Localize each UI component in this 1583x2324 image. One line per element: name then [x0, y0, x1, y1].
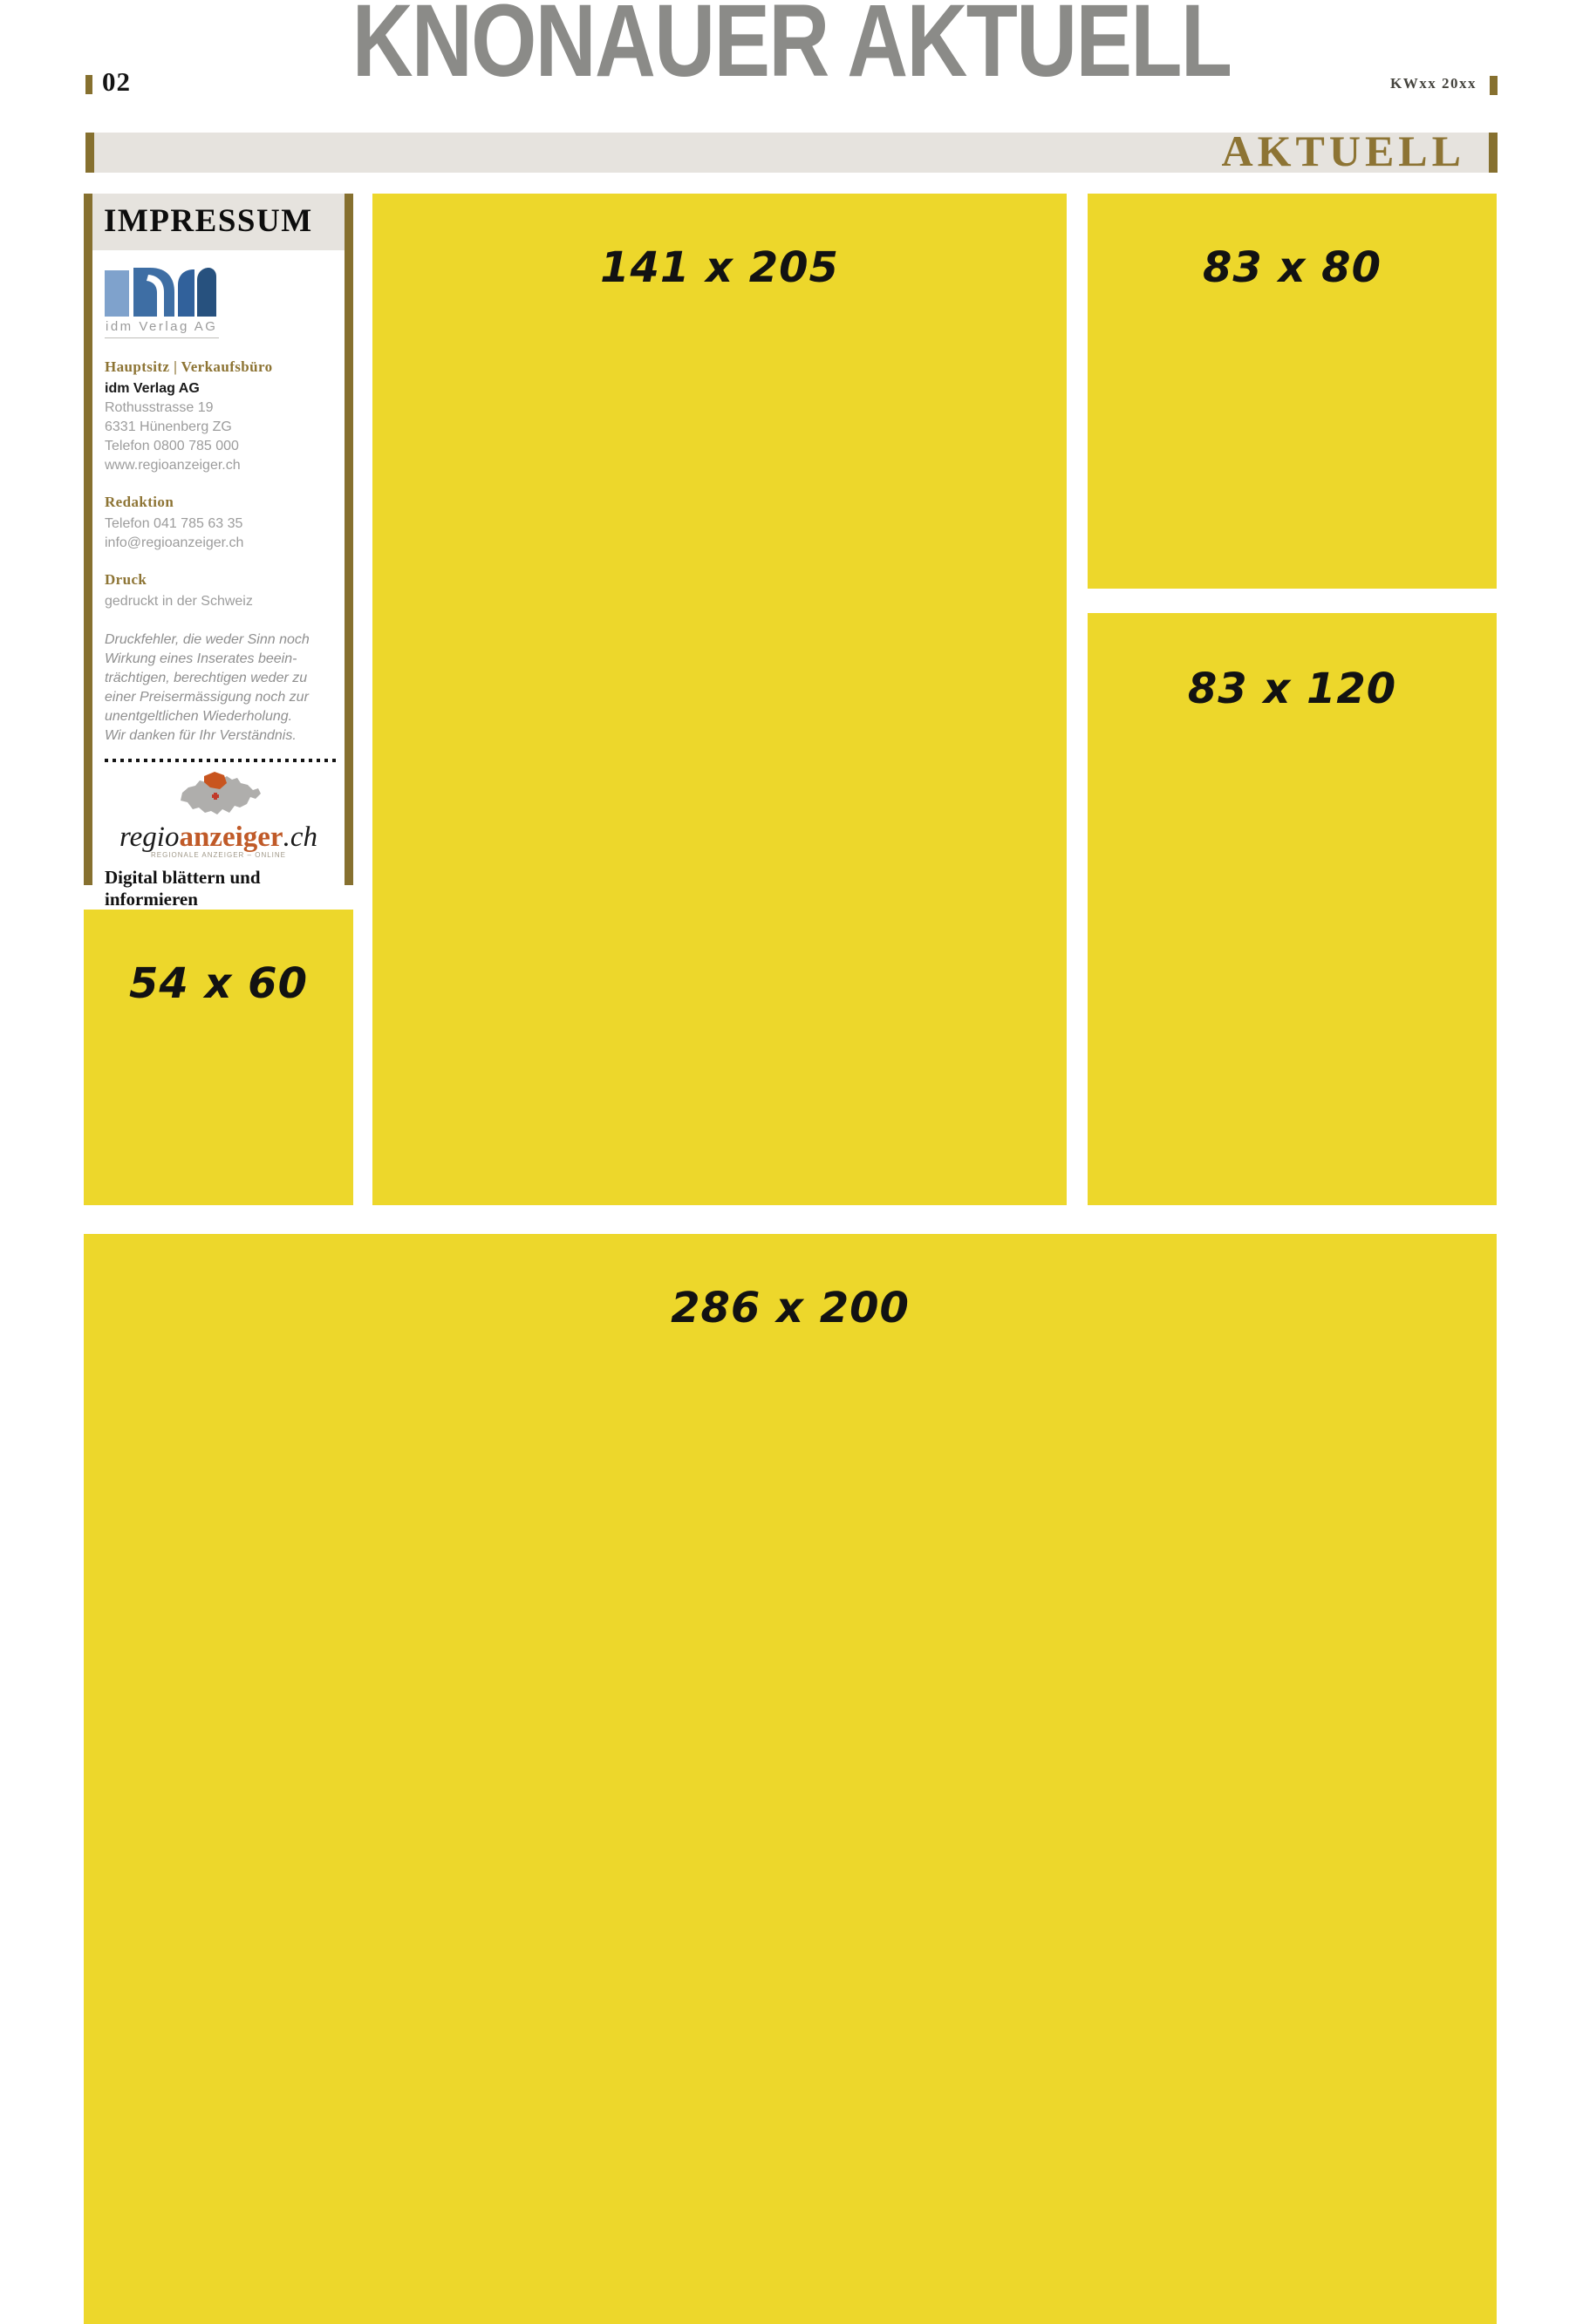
impressum-website: www.regioanzeiger.ch — [105, 456, 332, 475]
page-number: 02 — [102, 68, 131, 95]
disclaimer-line: Wir danken für Ihr Verständnis. — [105, 726, 332, 746]
disclaimer-line: Druckfehler, die weder Sinn noch — [105, 630, 332, 650]
impressum-address-street: Rothusstrasse 19 — [105, 399, 332, 418]
switzerland-map-icon — [175, 768, 263, 819]
ad-slot-141x205[interactable]: 141 x 205 — [372, 194, 1067, 1205]
issue-marker-bar — [1490, 76, 1498, 95]
page-number-marker-bar — [85, 75, 92, 94]
brand-regio: regio — [119, 821, 179, 853]
ad-slot-label: 141 x 205 — [600, 247, 839, 289]
impressum-heading-druck: Druck — [105, 571, 332, 589]
band-right-bar — [1489, 133, 1498, 173]
disclaimer-line: unentgeltlichen Wiederholung. — [105, 707, 332, 726]
disclaimer-line: Wirkung eines Inserates beein- — [105, 650, 332, 669]
impressum-title: IMPRESSUM — [92, 194, 345, 250]
regioanzeiger-brand: regioanzeiger.ch — [105, 824, 332, 850]
impressum-footer: Digital blättern und informieren — [105, 867, 332, 910]
section-band: AKTUELL — [85, 133, 1498, 173]
idm-verlag-logo-icon — [105, 266, 216, 317]
brand-tld: .ch — [283, 821, 317, 853]
idm-logo-caption: idm Verlag AG — [105, 317, 219, 338]
switzerland-map-wrap: regioanzeiger.ch REGIONALE ANZEIGER – ON… — [105, 768, 332, 859]
ad-slot-83x120[interactable]: 83 x 120 — [1088, 613, 1497, 1205]
disclaimer-line: einer Preisermässigung noch zur — [105, 688, 332, 707]
impressum-footer-line1: Digital blättern und — [105, 867, 332, 889]
issue-week-label: KWxx 20xx — [1390, 75, 1477, 92]
newspaper-template-page: 02 KNONAUER AKTUELL KWxx 20xx AKTUELL IM… — [0, 0, 1583, 2324]
impressum-heading-redaktion: Redaktion — [105, 494, 332, 511]
impressum-heading-hauptsitz: Hauptsitz | Verkaufsbüro — [105, 358, 332, 376]
masthead-title: KNONAUER AKTUELL — [142, 0, 1440, 92]
impressum-box: IMPRESSUM idm Verlag AG Hauptsitz | Verk… — [84, 194, 353, 885]
impressum-company: idm Verlag AG — [105, 379, 332, 399]
impressum-footer-line2: informieren — [105, 889, 332, 910]
impressum-phone-redaktion: Telefon 041 785 63 35 — [105, 515, 332, 534]
section-title: AKTUELL — [1221, 126, 1465, 175]
impressum-phone-main: Telefon 0800 785 000 — [105, 437, 332, 456]
impressum-druck-line: gedruckt in der Schweiz — [105, 592, 332, 611]
ad-slot-label: 286 x 200 — [671, 1287, 910, 1329]
ad-slot-label: 83 x 120 — [1188, 668, 1396, 710]
ad-slot-83x80[interactable]: 83 x 80 — [1088, 194, 1497, 589]
impressum-body: idm Verlag AG Hauptsitz | Verkaufsbüro i… — [92, 250, 345, 910]
ad-slot-54x60[interactable]: 54 x 60 — [84, 910, 353, 1205]
impressum-email: info@regioanzeiger.ch — [105, 534, 332, 553]
disclaimer-line: trächtigen, berechtigen weder zu — [105, 669, 332, 688]
ad-slot-label: 54 x 60 — [129, 963, 308, 1005]
dotted-divider — [105, 759, 337, 762]
impressum-address-city: 6331 Hünenberg ZG — [105, 418, 332, 437]
ad-slot-label: 83 x 80 — [1203, 247, 1382, 289]
impressum-disclaimer: Druckfehler, die weder Sinn noch Wirkung… — [105, 630, 332, 746]
brand-anzeiger: anzeiger — [179, 821, 283, 853]
band-left-bar — [85, 133, 94, 173]
ad-slot-286x200[interactable]: 286 x 200 — [84, 1234, 1497, 2324]
